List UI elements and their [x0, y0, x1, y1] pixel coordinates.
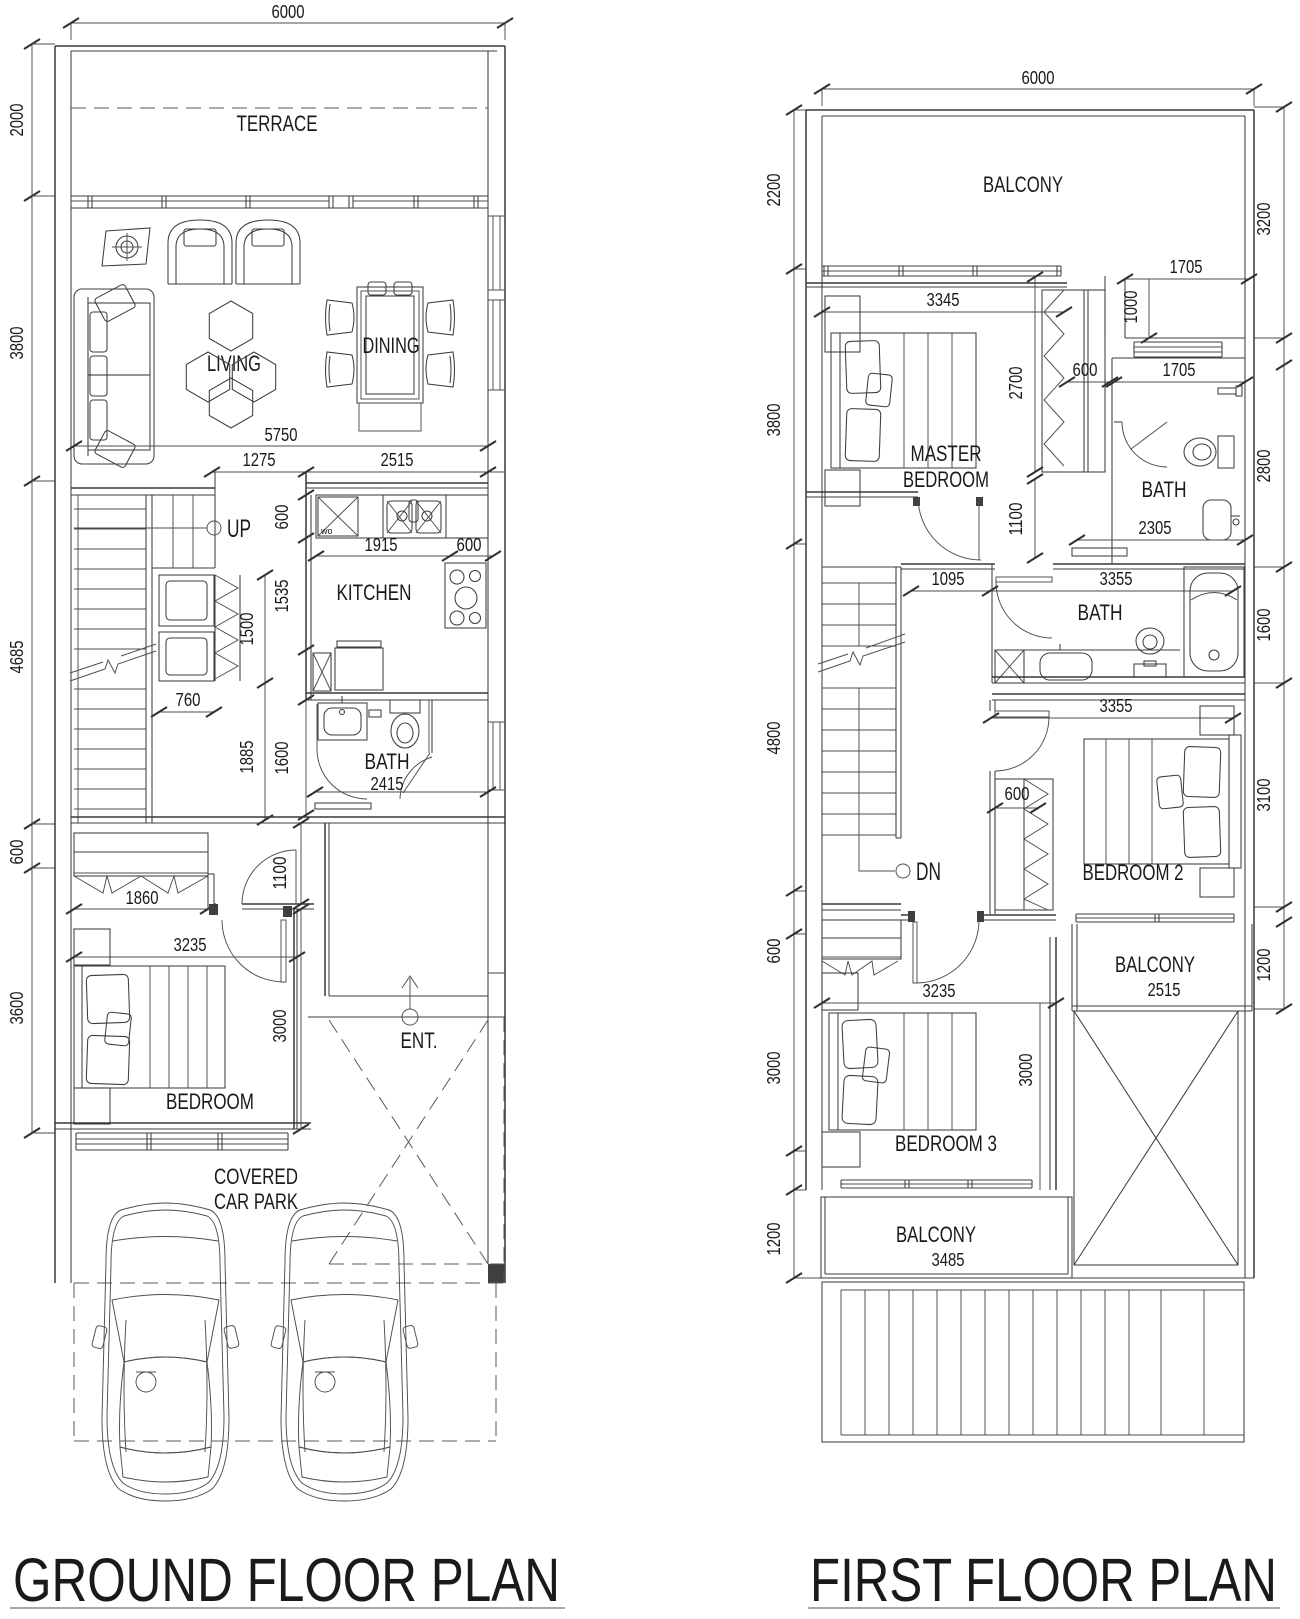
- svg-text:760: 760: [176, 690, 201, 710]
- svg-text:6000: 6000: [272, 2, 305, 22]
- svg-text:1000: 1000: [1121, 291, 1141, 324]
- svg-text:4685: 4685: [7, 641, 27, 674]
- svg-text:4800: 4800: [764, 722, 784, 755]
- svg-text:ENT.: ENT.: [401, 1028, 438, 1053]
- svg-text:1200: 1200: [764, 1223, 784, 1256]
- svg-text:FIRST FLOOR PLAN: FIRST FLOOR PLAN: [810, 1546, 1277, 1614]
- svg-text:1100: 1100: [1006, 503, 1026, 536]
- svg-text:GROUND FLOOR PLAN: GROUND FLOOR PLAN: [13, 1546, 560, 1614]
- svg-text:UP: UP: [227, 515, 251, 543]
- svg-text:3355: 3355: [1100, 569, 1133, 589]
- svg-text:BATH: BATH: [365, 749, 410, 774]
- svg-text:3600: 3600: [7, 992, 27, 1025]
- svg-text:CAR PARK: CAR PARK: [214, 1189, 298, 1214]
- svg-text:600: 600: [457, 535, 482, 555]
- svg-text:1600: 1600: [1254, 609, 1274, 642]
- svg-text:600: 600: [7, 840, 27, 865]
- svg-text:2000: 2000: [7, 104, 27, 137]
- svg-text:3235: 3235: [174, 935, 207, 955]
- svg-text:3355: 3355: [1100, 696, 1133, 716]
- svg-text:1705: 1705: [1163, 360, 1196, 380]
- svg-text:2515: 2515: [1148, 980, 1181, 1000]
- svg-text:3000: 3000: [270, 1010, 290, 1043]
- svg-text:wo: wo: [320, 526, 333, 536]
- svg-text:6000: 6000: [1022, 68, 1055, 88]
- svg-text:BEDROOM: BEDROOM: [166, 1089, 254, 1114]
- svg-text:2515: 2515: [381, 450, 414, 470]
- svg-text:1600: 1600: [272, 742, 292, 775]
- svg-text:KITCHEN: KITCHEN: [337, 580, 412, 605]
- svg-text:2700: 2700: [1006, 367, 1026, 400]
- svg-text:1275: 1275: [243, 450, 276, 470]
- svg-text:2800: 2800: [1254, 450, 1274, 483]
- svg-text:3485: 3485: [932, 1250, 965, 1270]
- svg-text:BEDROOM 2: BEDROOM 2: [1083, 860, 1184, 885]
- svg-text:1705: 1705: [1170, 257, 1203, 277]
- svg-text:600: 600: [1005, 784, 1030, 804]
- svg-text:1095: 1095: [932, 569, 965, 589]
- svg-text:1885: 1885: [237, 741, 257, 774]
- svg-text:1200: 1200: [1254, 949, 1274, 982]
- svg-text:2305: 2305: [1139, 518, 1172, 538]
- svg-text:3000: 3000: [764, 1052, 784, 1085]
- svg-text:COVERED: COVERED: [214, 1164, 298, 1189]
- svg-text:2415: 2415: [371, 774, 404, 794]
- svg-text:3100: 3100: [1254, 779, 1274, 812]
- svg-text:1915: 1915: [365, 535, 398, 555]
- svg-text:5750: 5750: [265, 425, 298, 445]
- svg-text:BEDROOM: BEDROOM: [903, 467, 989, 492]
- svg-text:BEDROOM 3: BEDROOM 3: [895, 1131, 997, 1156]
- svg-text:DINING: DINING: [363, 333, 420, 358]
- svg-text:3345: 3345: [927, 290, 960, 310]
- svg-text:3800: 3800: [7, 327, 27, 360]
- svg-text:600: 600: [764, 939, 784, 964]
- svg-text:DN: DN: [916, 858, 941, 886]
- svg-text:3200: 3200: [1254, 203, 1274, 236]
- svg-text:BATH: BATH: [1142, 477, 1187, 502]
- svg-text:3235: 3235: [923, 981, 956, 1001]
- svg-text:BALCONY: BALCONY: [896, 1222, 976, 1247]
- svg-text:BALCONY: BALCONY: [1115, 952, 1195, 977]
- svg-text:BATH: BATH: [1078, 600, 1123, 625]
- svg-text:1860: 1860: [126, 888, 159, 908]
- svg-text:3000: 3000: [1016, 1054, 1036, 1087]
- svg-text:2200: 2200: [764, 174, 784, 207]
- svg-text:1535: 1535: [272, 580, 292, 613]
- svg-text:3800: 3800: [764, 404, 784, 437]
- svg-text:600: 600: [272, 505, 292, 530]
- svg-text:MASTER: MASTER: [911, 441, 982, 466]
- svg-text:600: 600: [1073, 360, 1098, 380]
- svg-text:TERRACE: TERRACE: [237, 111, 318, 136]
- svg-text:1100: 1100: [270, 857, 290, 890]
- svg-text:BALCONY: BALCONY: [983, 172, 1063, 197]
